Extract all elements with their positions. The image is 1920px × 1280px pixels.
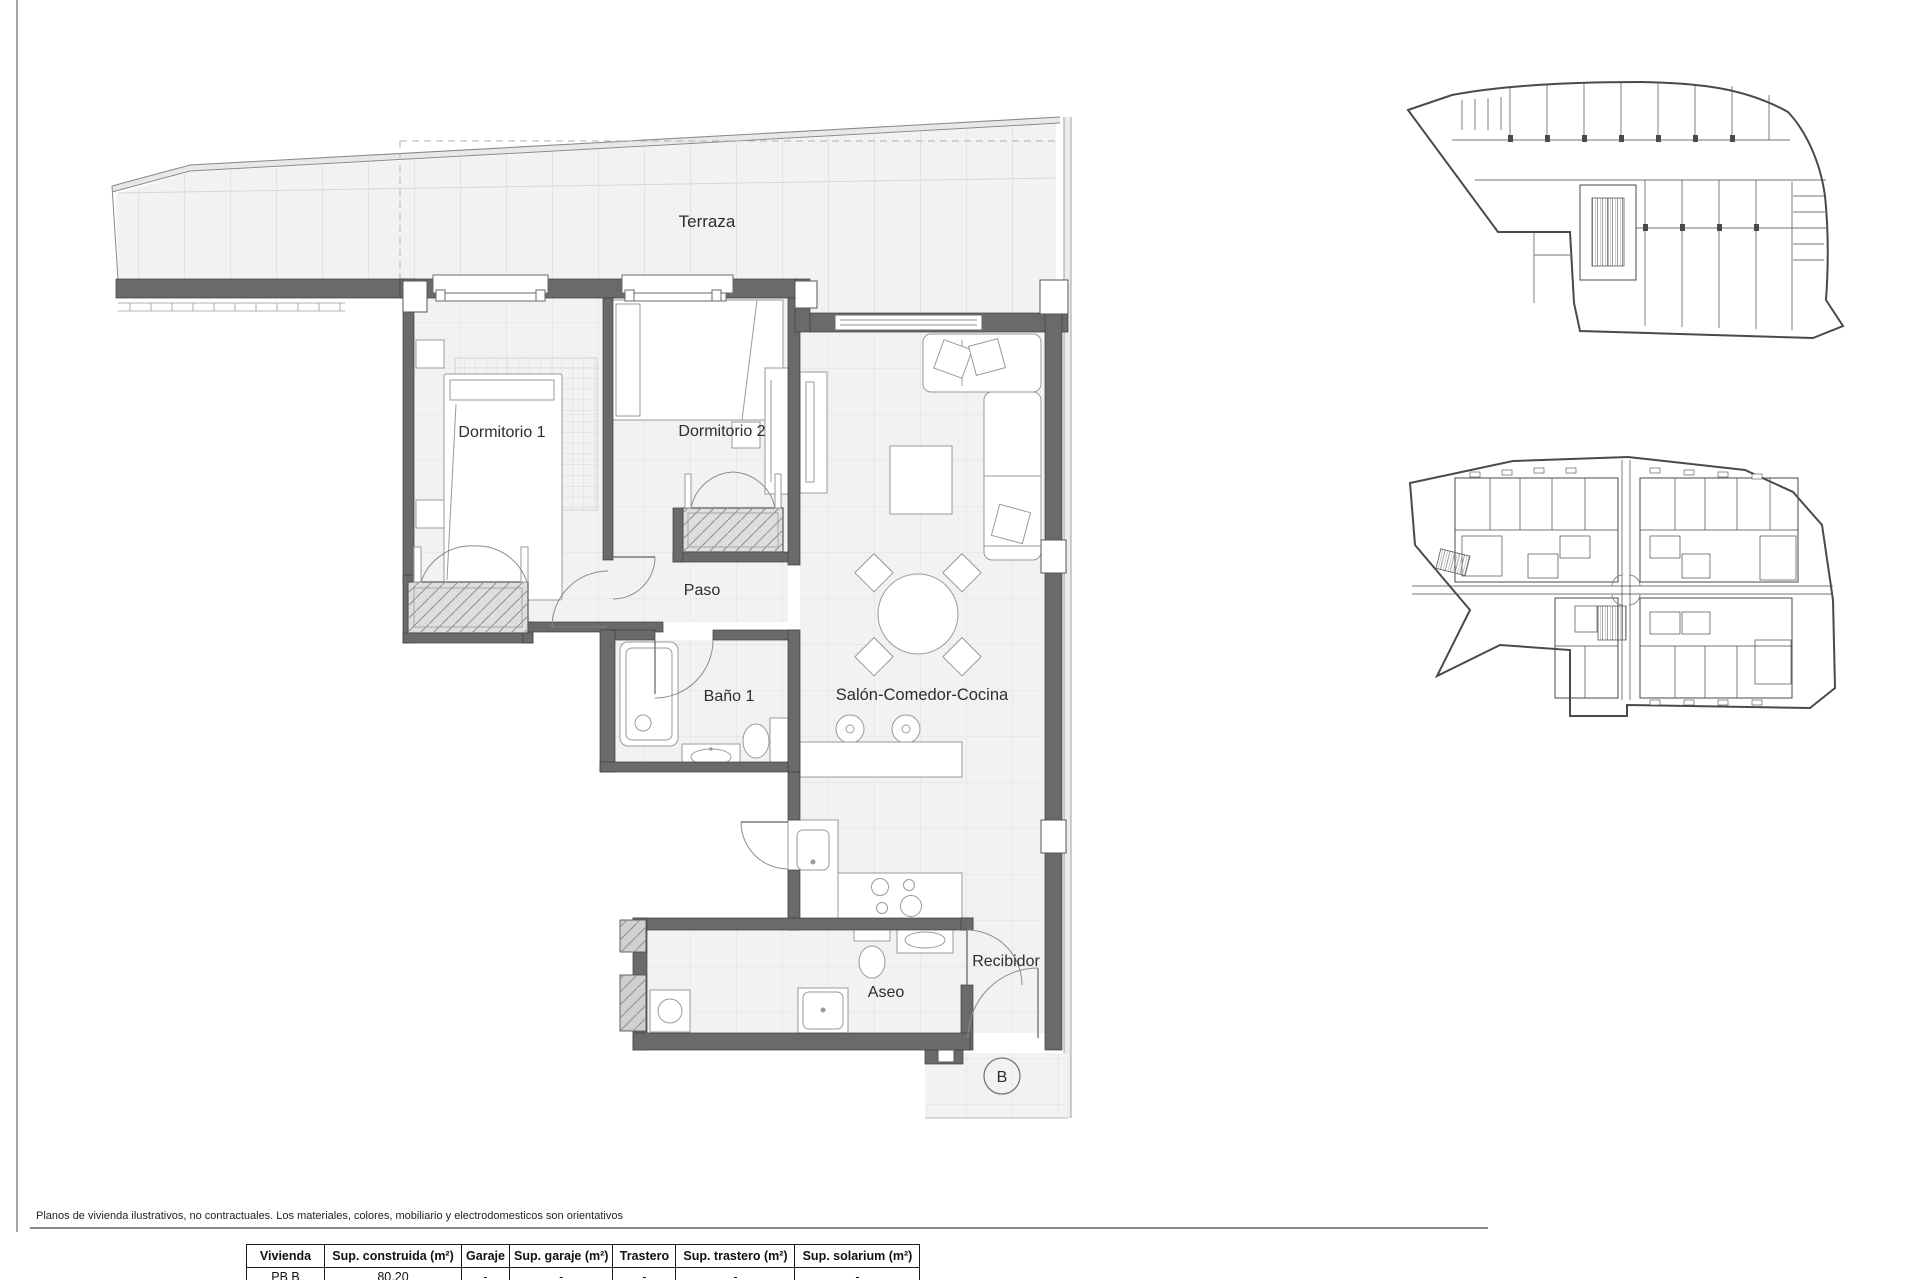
col-sup-solarium: Sup. solarium (m²) — [795, 1245, 920, 1268]
surfaces-table: Vivienda Sup. construida (m²) Garaje Sup… — [246, 1244, 920, 1280]
cell-sup-solarium: - — [795, 1268, 920, 1280]
surfaces-table-header-row: Vivienda Sup. construida (m²) Garaje Sup… — [247, 1245, 920, 1268]
col-sup-construida: Sup. construida (m²) — [325, 1245, 462, 1268]
col-vivienda: Vivienda — [247, 1245, 325, 1268]
label-dormitorio2: Dormitorio 2 — [678, 423, 765, 440]
bed-dormitorio2 — [612, 300, 783, 420]
label-salon: Salón-Comedor-Cocina — [836, 686, 1009, 704]
cell-sup-trastero: - — [676, 1268, 795, 1280]
kitchen-peninsula — [800, 742, 962, 777]
disclaimer-text: Planos de vivienda ilustrativos, no cont… — [36, 1210, 623, 1222]
col-trastero: Trastero — [613, 1245, 676, 1268]
nightstand — [416, 500, 444, 528]
nightstand — [416, 340, 444, 368]
coffee-table — [890, 446, 952, 514]
bed-dormitorio1 — [444, 374, 562, 600]
surfaces-table-row: PB B 80.20 - - - - - — [247, 1268, 920, 1280]
floorplan-sheet: B Terraza Dormitorio 1 Dormitorio 2 Paso… — [0, 0, 1920, 1280]
main-floorplan: B Terraza Dormitorio 1 Dormitorio 2 Paso… — [112, 117, 1071, 1118]
toilet — [770, 718, 788, 764]
overview-plan-garage — [1408, 82, 1843, 338]
overview-plan-key — [1410, 457, 1835, 716]
cell-sup-garaje: - — [510, 1268, 613, 1280]
sheet-left-border — [16, 0, 18, 1232]
label-dormitorio1: Dormitorio 1 — [458, 424, 545, 441]
col-sup-trastero: Sup. trastero (m²) — [676, 1245, 795, 1268]
window-dormitorio2 — [622, 275, 733, 301]
cell-trastero: - — [613, 1268, 676, 1280]
cell-vivienda: PB B — [247, 1268, 325, 1280]
col-garaje: Garaje — [462, 1245, 510, 1268]
label-terraza: Terraza — [679, 212, 736, 231]
floorplan-drawing: B Terraza Dormitorio 1 Dormitorio 2 Paso… — [0, 0, 1920, 1280]
cell-garaje: - — [462, 1268, 510, 1280]
label-aseo: Aseo — [868, 984, 905, 1001]
col-sup-garaje: Sup. garaje (m²) — [510, 1245, 613, 1268]
bathtub — [620, 642, 678, 746]
label-recibidor: Recibidor — [972, 953, 1040, 970]
window-dormitorio1 — [433, 275, 548, 301]
label-paso: Paso — [684, 582, 721, 599]
unit-b-label: B — [997, 1069, 1008, 1086]
sheet-rule — [30, 1227, 1488, 1229]
cell-sup-construida: 80.20 — [325, 1268, 462, 1280]
window-living — [835, 315, 982, 330]
label-bano1: Baño 1 — [704, 688, 755, 705]
washer — [650, 990, 690, 1032]
